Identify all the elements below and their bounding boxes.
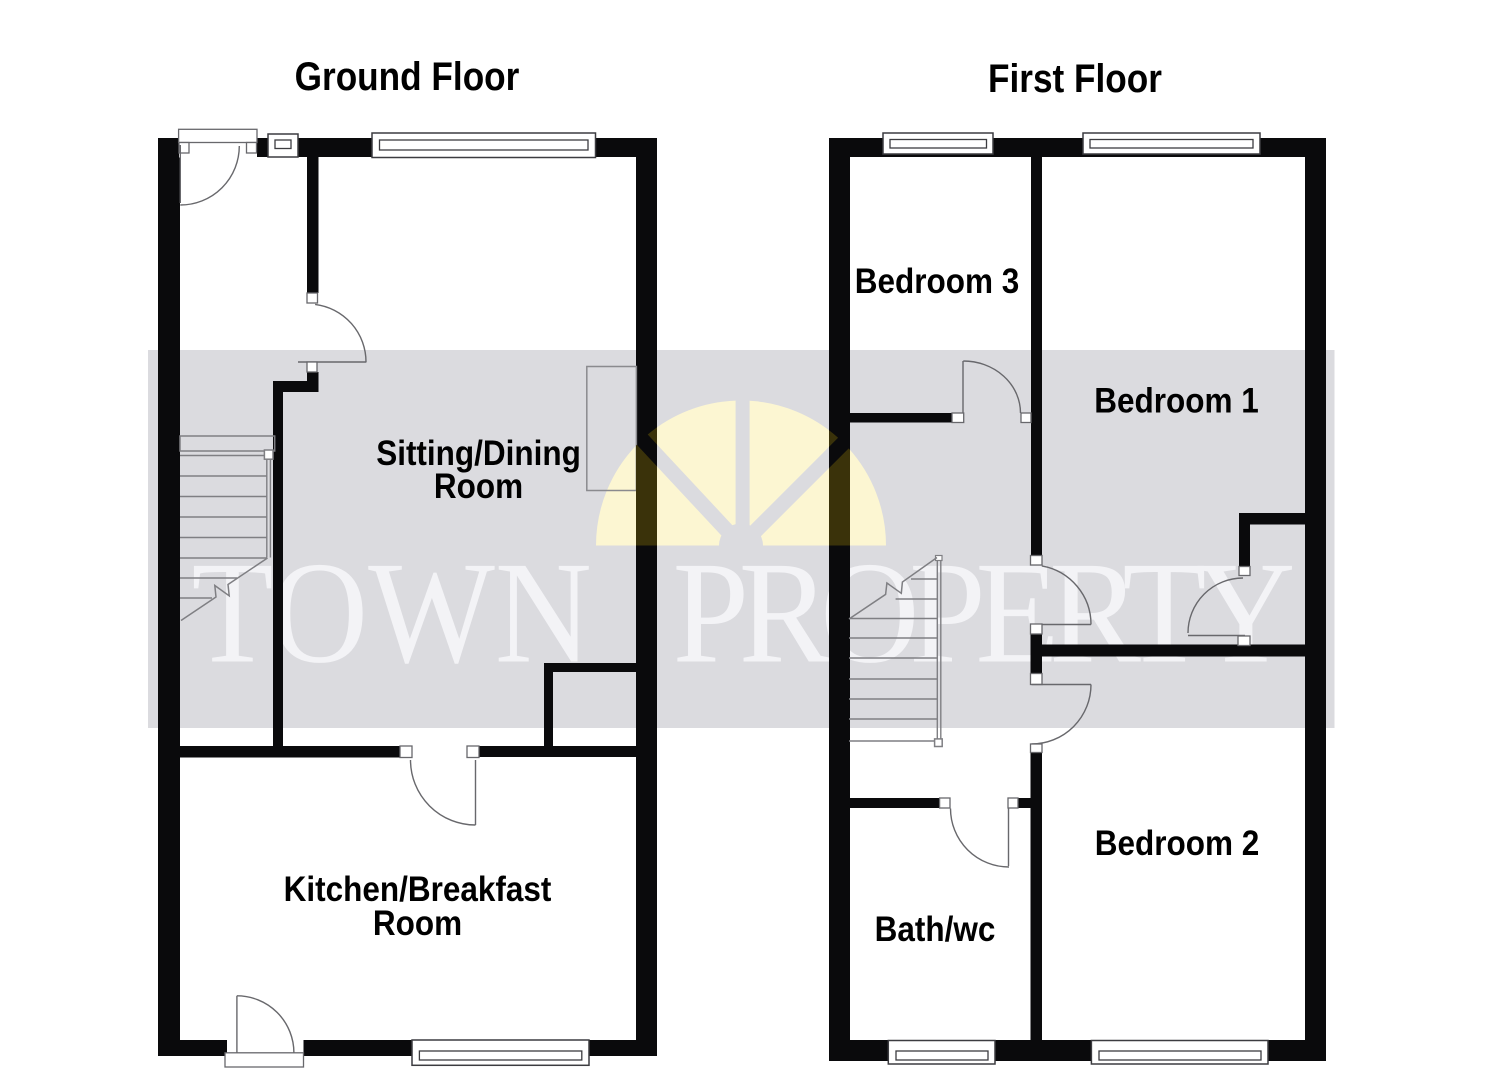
svg-text:Bath/wc: Bath/wc — [875, 911, 996, 950]
svg-text:Bedroom 2: Bedroom 2 — [1095, 825, 1259, 864]
svg-text:TOWN: TOWN — [192, 532, 592, 693]
svg-text:First Floor: First Floor — [988, 56, 1162, 101]
svg-text:Bedroom 3: Bedroom 3 — [855, 263, 1019, 302]
svg-text:Bedroom 1: Bedroom 1 — [1094, 382, 1258, 421]
svg-text:PROPERTY: PROPERTY — [673, 532, 1293, 694]
svg-text:Ground Floor: Ground Floor — [295, 54, 520, 99]
svg-text:Room: Room — [373, 905, 462, 944]
svg-text:Room: Room — [434, 468, 523, 507]
